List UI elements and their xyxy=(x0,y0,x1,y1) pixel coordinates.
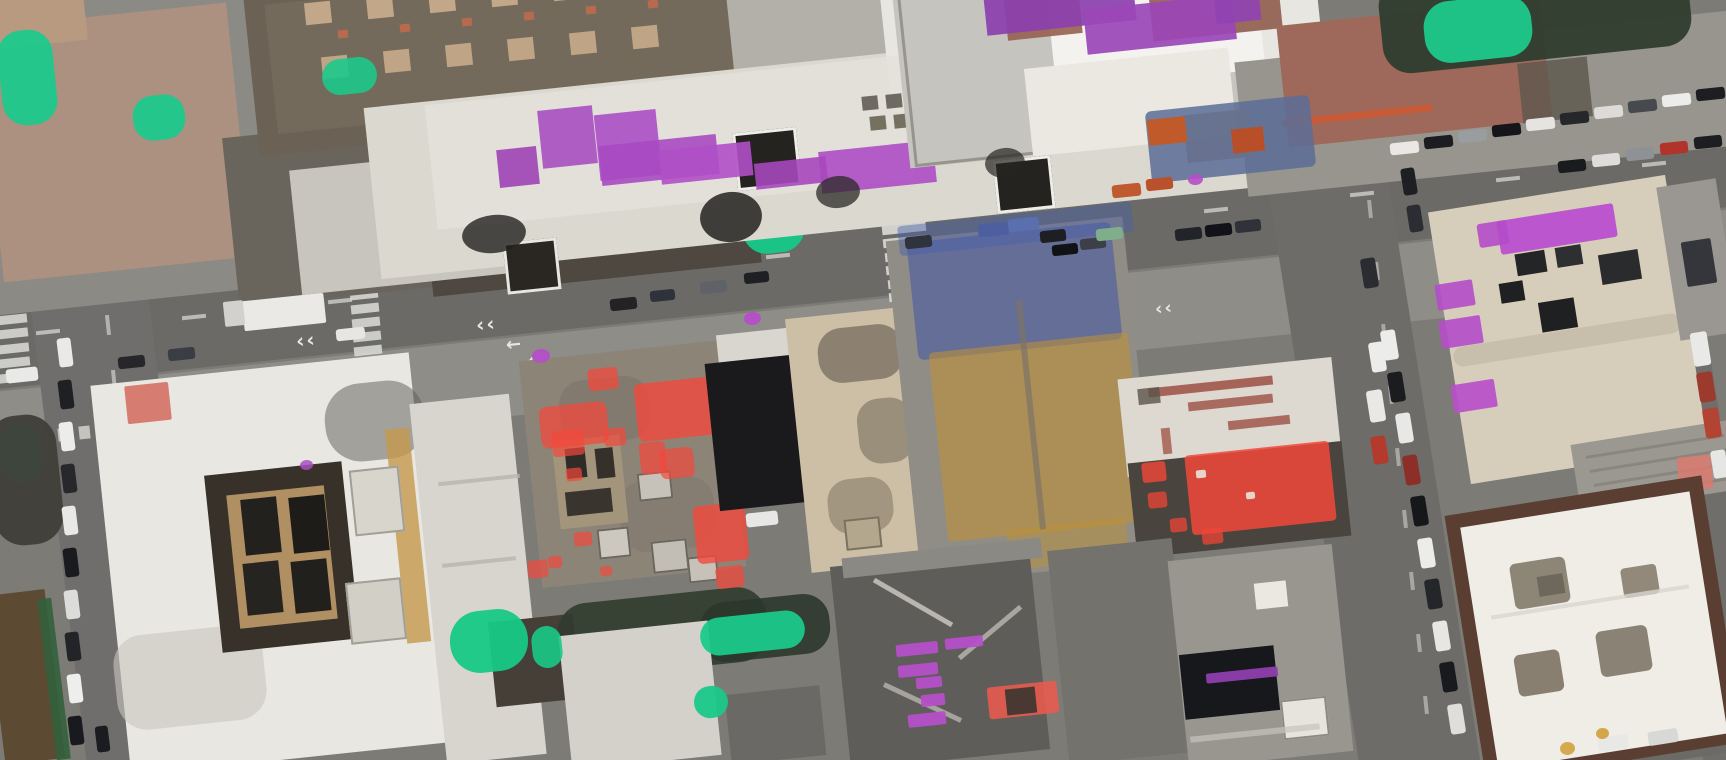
roof-damage-overlay xyxy=(547,555,562,568)
roof-damage-overlay xyxy=(1169,517,1187,533)
crosswalk-south-arm xyxy=(78,425,90,439)
patio-table xyxy=(507,37,535,62)
road-chevrons: ‹‹ xyxy=(295,329,317,351)
rooftop-unit xyxy=(650,538,689,574)
courtyard-window xyxy=(242,560,283,615)
roof-damage-overlay xyxy=(527,559,549,579)
patio-table xyxy=(366,0,394,19)
rooftop-unit xyxy=(345,577,407,645)
patio-table xyxy=(631,25,659,50)
roof-damage-overlay xyxy=(551,428,586,457)
road-arrow: ← xyxy=(505,335,524,355)
rooftop-unit xyxy=(843,516,882,551)
roof-damage-overlay xyxy=(659,446,696,479)
road-chevrons: ‹‹ xyxy=(475,313,497,335)
aerial-image: ‹‹‹‹‹‹‹‹←←↑ xyxy=(0,0,1726,760)
rooftop-unit xyxy=(349,466,406,537)
rooftop-unit xyxy=(1513,649,1565,698)
building-gray-center xyxy=(830,546,1050,760)
roof-damage-overlay xyxy=(124,382,172,424)
parked-car-column-left-street xyxy=(60,463,77,493)
patio-table xyxy=(304,1,332,26)
roof-damage-overlay xyxy=(1201,527,1224,545)
solar-panel-overlay xyxy=(496,146,540,188)
rooftop-unit xyxy=(1555,244,1584,268)
rooftop-unit xyxy=(1499,280,1526,304)
roof-vent xyxy=(1137,387,1161,405)
rooftop-unit xyxy=(1537,573,1566,597)
roof-vent xyxy=(1005,687,1038,716)
courtyard-window xyxy=(288,494,330,553)
rooftop-unit xyxy=(597,526,632,559)
patio-chair xyxy=(338,29,349,38)
rooftop-unit xyxy=(1280,696,1330,741)
gray-building-sw xyxy=(725,685,827,760)
orange-equipment xyxy=(1147,116,1188,146)
roof-damage-overlay xyxy=(715,565,745,590)
roof-damage-overlay xyxy=(587,366,619,391)
courtyard-window xyxy=(290,558,331,613)
roof-damage-overlay xyxy=(1141,461,1167,483)
rooftop-unit xyxy=(1514,250,1547,276)
patio-table xyxy=(445,43,473,68)
courtyard-dark xyxy=(1179,645,1280,720)
patio-chair xyxy=(462,17,473,26)
patio-chair xyxy=(400,23,411,32)
patio-table xyxy=(569,31,597,56)
orange-equipment xyxy=(1231,126,1265,153)
patio-chair xyxy=(586,5,597,14)
roof-damage-overlay xyxy=(1147,491,1168,509)
patio-chair xyxy=(648,0,659,9)
truck-cab xyxy=(223,300,246,327)
road-chevrons: ‹‹ xyxy=(1154,299,1175,319)
solar-panel-overlay xyxy=(1476,220,1509,248)
penthouse-window xyxy=(565,488,613,517)
roof-white-dot xyxy=(1196,469,1207,478)
solar-panel-overlay xyxy=(537,105,598,168)
roof-damage-overlay xyxy=(573,531,592,547)
patio-chair xyxy=(524,11,535,20)
roof-patio-grid xyxy=(869,115,886,131)
rooftop-unit xyxy=(1598,249,1642,285)
penthouse-window xyxy=(594,447,615,479)
roof-patio-grid xyxy=(885,93,902,109)
roof-damage-overlay xyxy=(600,565,613,576)
roof-patio-grid xyxy=(861,95,878,111)
roof-white-dot xyxy=(1246,492,1256,500)
roof-damage-overlay xyxy=(603,427,627,447)
solar-panel-overlay xyxy=(920,693,945,707)
rooftop-unit xyxy=(1595,624,1654,678)
truck-red xyxy=(1702,407,1722,439)
courtyard-window xyxy=(240,496,282,555)
patio-table xyxy=(383,49,411,74)
rooftop-unit xyxy=(1254,580,1289,609)
roof-damage-overlay xyxy=(565,467,582,482)
building-white-bottom-right xyxy=(1460,491,1726,760)
car xyxy=(745,510,778,527)
rooftop-unit xyxy=(1538,297,1578,332)
parked-car-column-left-street xyxy=(66,673,83,703)
roof-damage-overlay xyxy=(1184,441,1337,536)
